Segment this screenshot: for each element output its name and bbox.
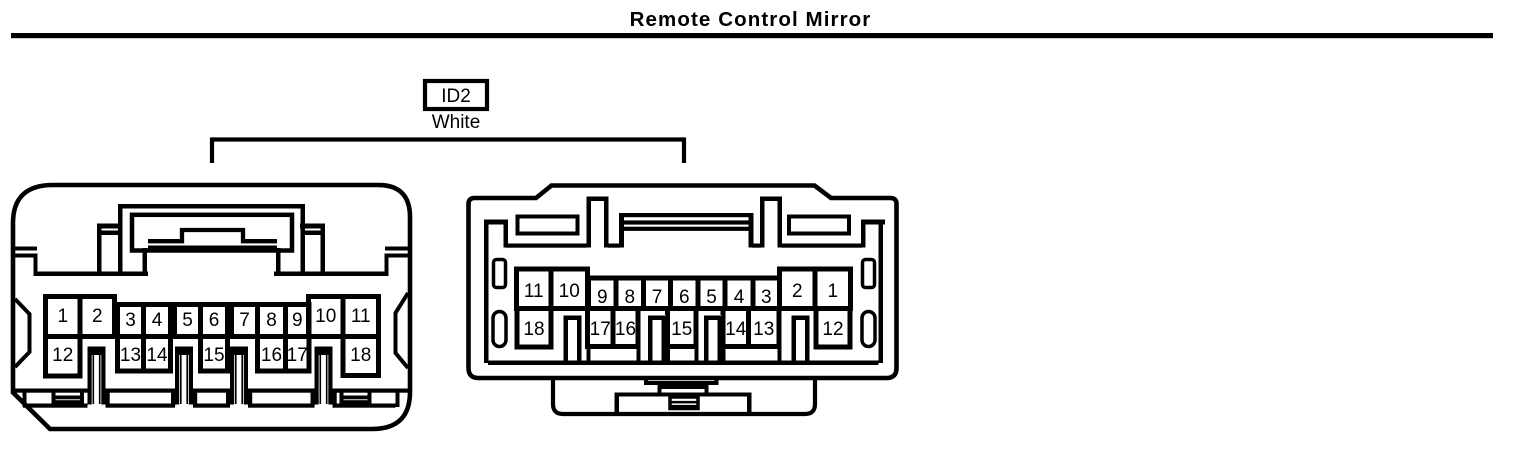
svg-text:7: 7 xyxy=(239,310,250,331)
svg-text:11: 11 xyxy=(524,281,544,302)
svg-text:10: 10 xyxy=(559,281,580,302)
svg-text:5: 5 xyxy=(182,310,193,331)
svg-text:17: 17 xyxy=(590,319,611,340)
svg-text:2: 2 xyxy=(792,281,803,302)
svg-text:9: 9 xyxy=(292,310,303,331)
svg-text:7: 7 xyxy=(652,287,663,308)
svg-text:10: 10 xyxy=(315,306,336,327)
svg-text:White: White xyxy=(432,112,481,133)
svg-text:Remote Control Mirror: Remote Control Mirror xyxy=(630,8,872,31)
svg-text:6: 6 xyxy=(209,310,220,331)
svg-text:9: 9 xyxy=(597,287,608,308)
svg-text:17: 17 xyxy=(287,345,308,366)
svg-text:16: 16 xyxy=(615,319,636,340)
svg-text:12: 12 xyxy=(822,319,843,340)
svg-text:14: 14 xyxy=(725,319,747,340)
svg-text:12: 12 xyxy=(52,345,73,366)
svg-text:13: 13 xyxy=(120,345,141,366)
svg-text:15: 15 xyxy=(203,345,224,366)
svg-text:3: 3 xyxy=(761,287,772,308)
svg-text:ID2: ID2 xyxy=(441,86,471,107)
svg-text:18: 18 xyxy=(350,345,371,366)
svg-text:3: 3 xyxy=(125,310,136,331)
svg-text:4: 4 xyxy=(152,310,163,331)
svg-text:1: 1 xyxy=(827,281,838,302)
svg-text:13: 13 xyxy=(753,319,774,340)
svg-text:1: 1 xyxy=(57,306,68,327)
svg-text:15: 15 xyxy=(671,319,692,340)
svg-text:16: 16 xyxy=(261,345,282,366)
svg-text:4: 4 xyxy=(734,287,745,308)
svg-text:6: 6 xyxy=(679,287,690,308)
svg-text:18: 18 xyxy=(523,319,544,340)
svg-text:14: 14 xyxy=(146,345,168,366)
svg-text:5: 5 xyxy=(706,287,717,308)
svg-text:8: 8 xyxy=(624,287,635,308)
svg-text:8: 8 xyxy=(266,310,277,331)
svg-text:2: 2 xyxy=(92,306,103,327)
svg-text:11: 11 xyxy=(351,306,371,327)
